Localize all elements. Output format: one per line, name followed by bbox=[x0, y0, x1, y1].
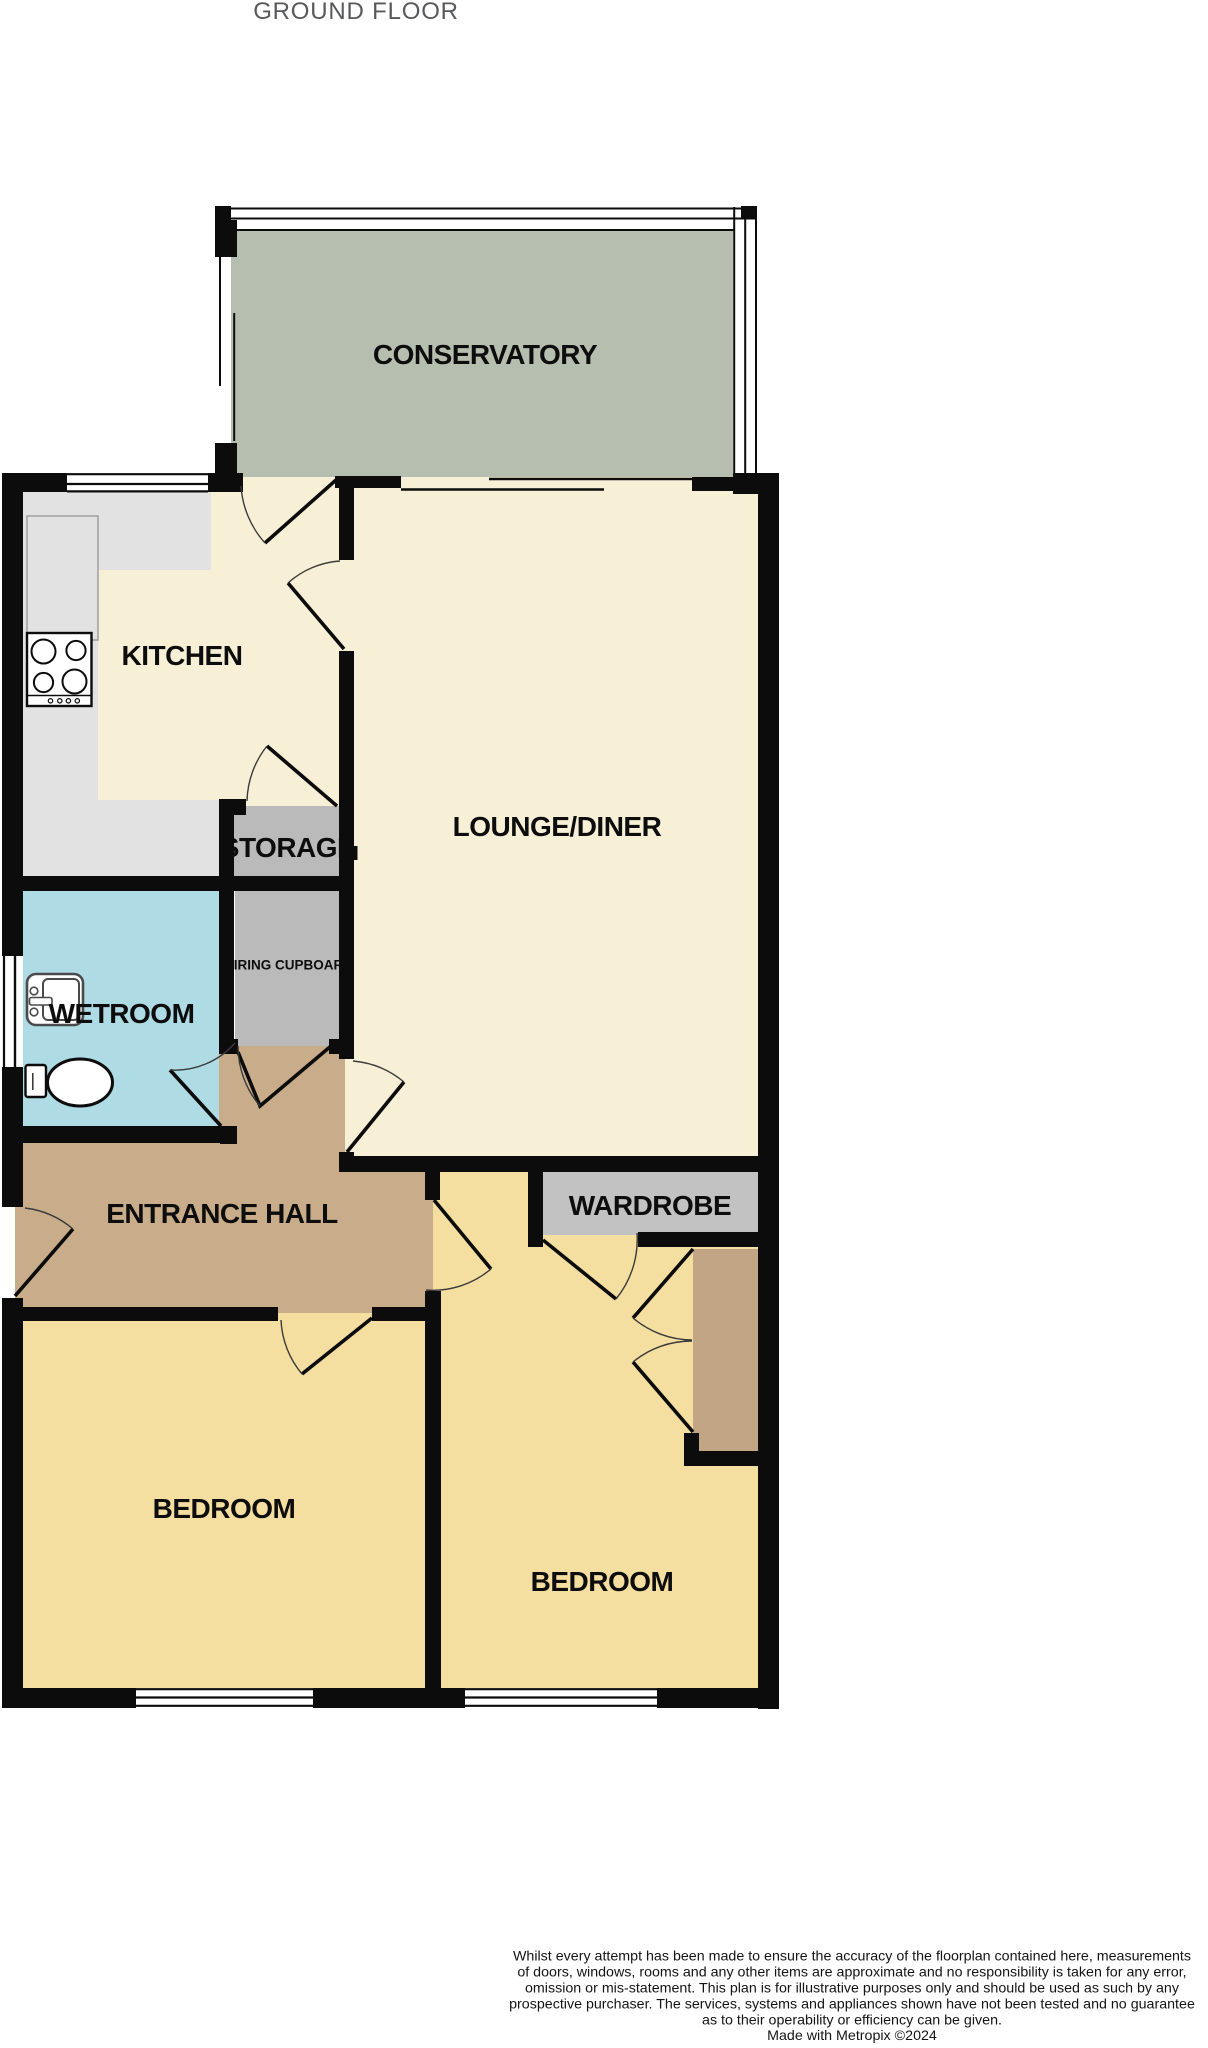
svg-text:BEDROOM: BEDROOM bbox=[531, 1566, 674, 1597]
svg-text:GROUND FLOOR: GROUND FLOOR bbox=[253, 0, 459, 25]
svg-text:of doors, windows, rooms and a: of doors, windows, rooms and any other i… bbox=[517, 1965, 1186, 1981]
svg-text:STORAGE: STORAGE bbox=[221, 832, 355, 863]
svg-text:as to their operability or eff: as to their operability or efficiency ca… bbox=[702, 2012, 1002, 2028]
svg-text:LOUNGE/DINER: LOUNGE/DINER bbox=[453, 811, 662, 842]
svg-text:WETROOM: WETROOM bbox=[49, 998, 195, 1029]
svg-text:KITCHEN: KITCHEN bbox=[122, 640, 243, 671]
svg-text:BEDROOM: BEDROOM bbox=[153, 1493, 296, 1524]
svg-text:WARDROBE: WARDROBE bbox=[569, 1190, 731, 1221]
svg-text:CONSERVATORY: CONSERVATORY bbox=[373, 339, 598, 370]
svg-text:ENTRANCE HALL: ENTRANCE HALL bbox=[106, 1198, 338, 1229]
svg-text:AIRING CUPBOARD: AIRING CUPBOARD bbox=[224, 958, 353, 973]
svg-text:prospective purchaser. The ser: prospective purchaser. The services, sys… bbox=[509, 1996, 1195, 2012]
svg-text:Whilst every attempt has been: Whilst every attempt has been made to en… bbox=[513, 1949, 1191, 1965]
svg-text:Made with Metropix ©2024: Made with Metropix ©2024 bbox=[767, 2028, 937, 2044]
svg-text:omission or mis-statement. Thi: omission or mis-statement. This plan is … bbox=[525, 1981, 1180, 1997]
